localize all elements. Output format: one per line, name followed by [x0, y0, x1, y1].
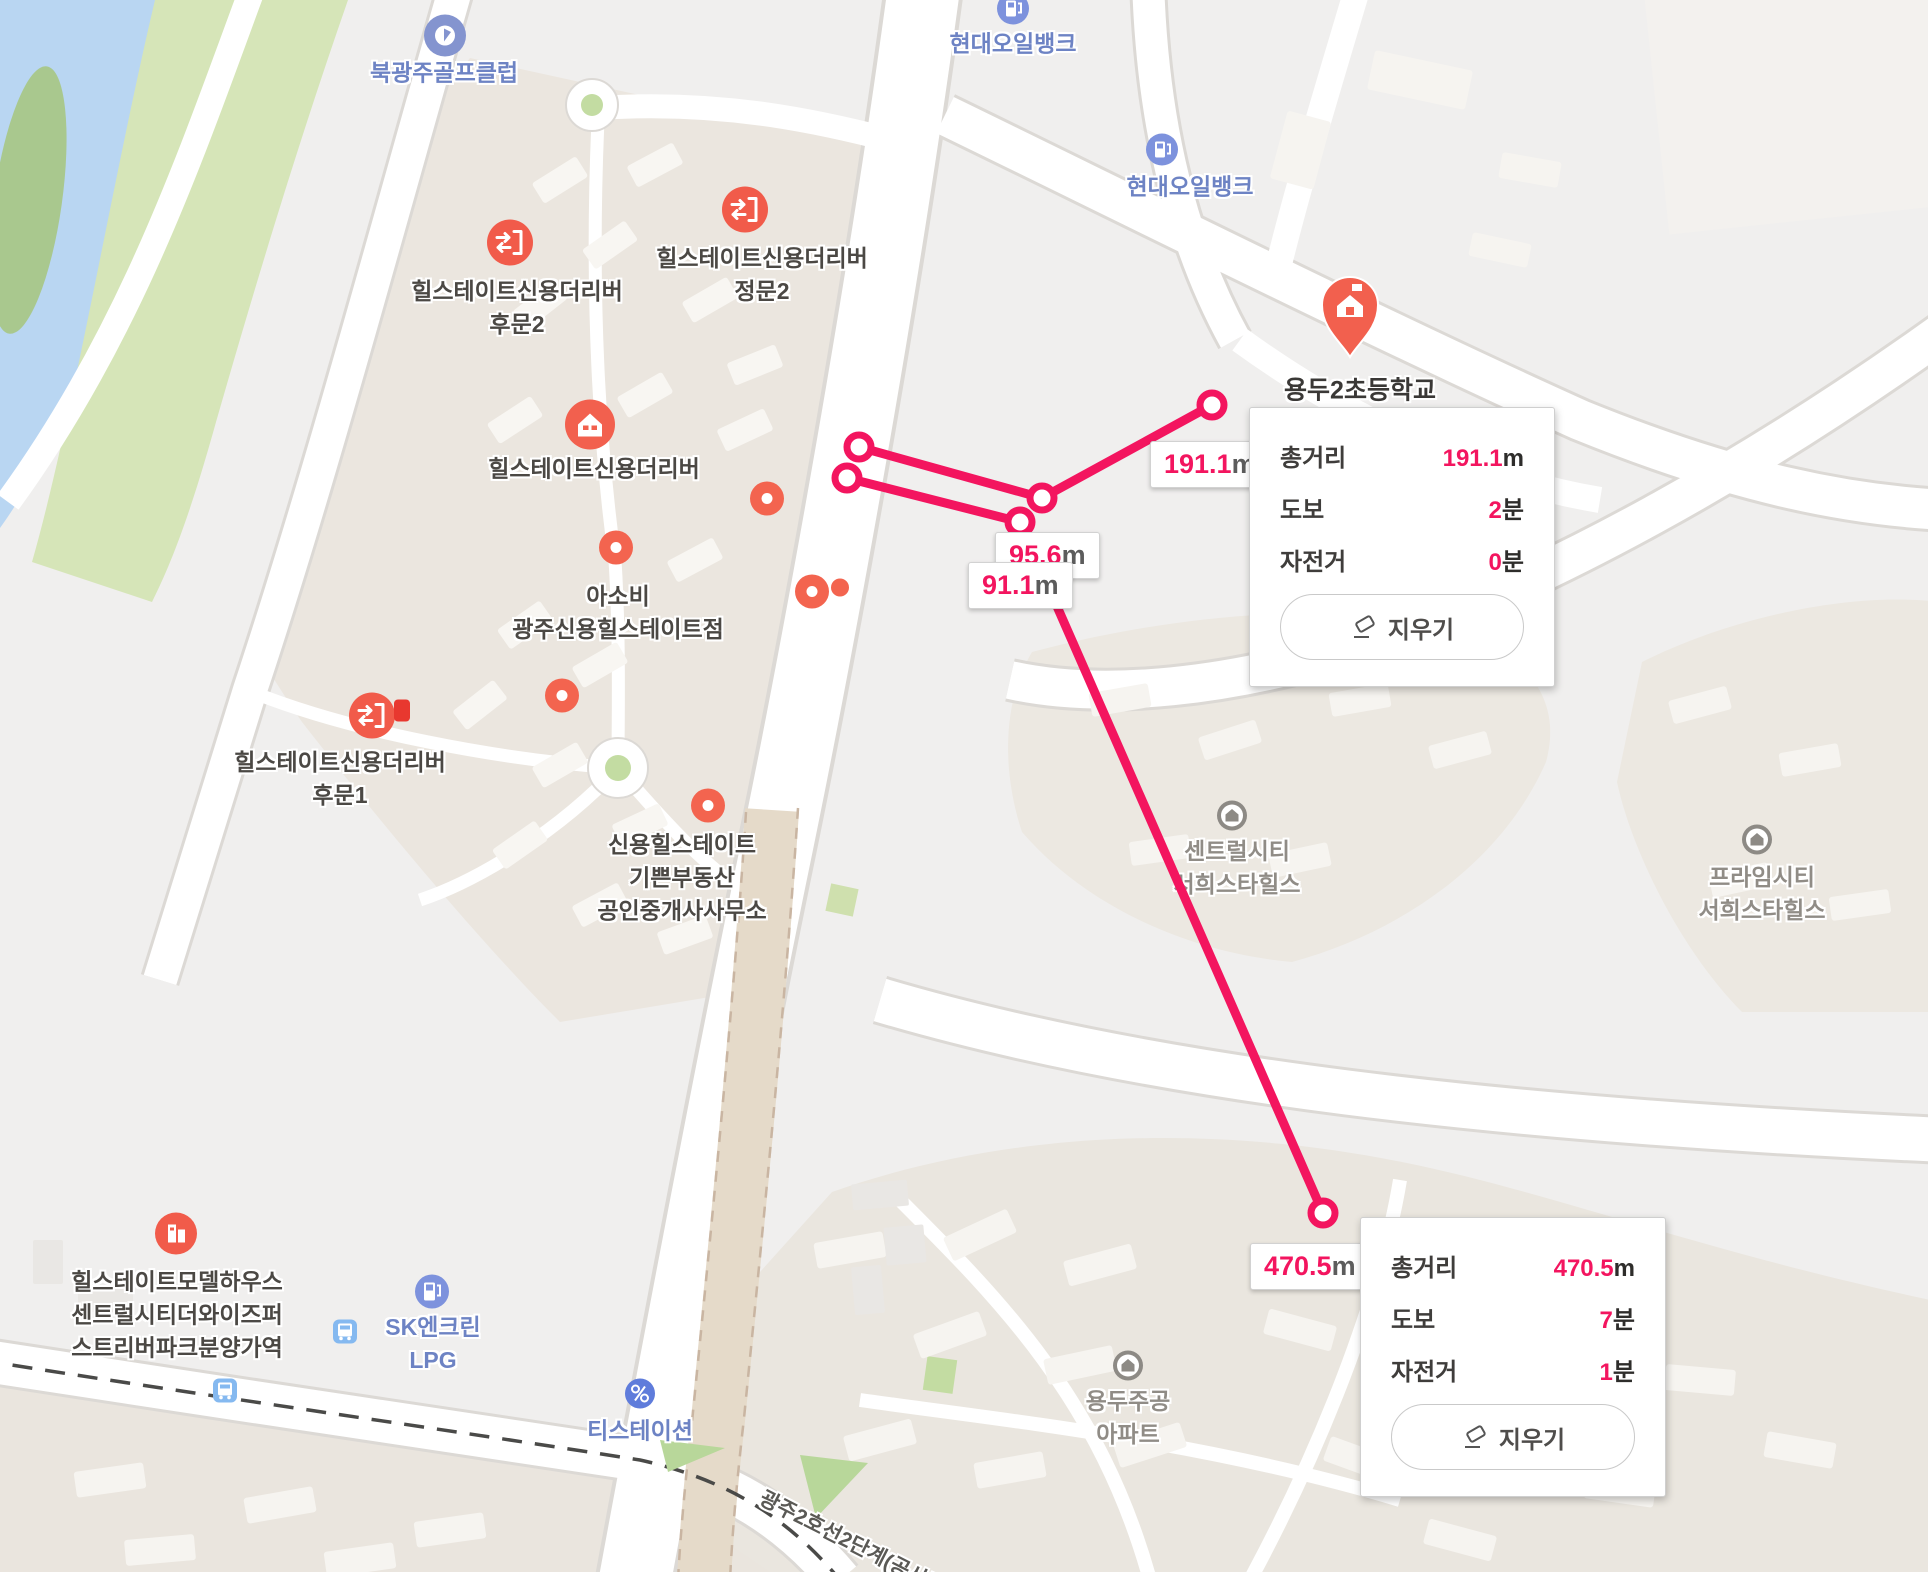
row-value: 191.1m: [1443, 445, 1524, 473]
eraser-icon: [1461, 1424, 1489, 1450]
distance-label: 470.5m: [1250, 1243, 1370, 1290]
popup-row-total: 총거리 191.1m: [1280, 438, 1524, 473]
popup-row-total: 총거리 470.5m: [1391, 1248, 1635, 1283]
popup-row-bike: 자전거 1분: [1391, 1352, 1635, 1387]
row-label: 도보: [1280, 490, 1324, 525]
clear-button-label: 지우기: [1499, 1420, 1565, 1455]
clear-button-label: 지우기: [1388, 610, 1454, 645]
popup-row-walk: 도보 2분: [1280, 490, 1524, 525]
popup-row-bike: 자전거 0분: [1280, 542, 1524, 577]
row-value: 2분: [1489, 490, 1524, 525]
eraser-icon: [1350, 614, 1378, 640]
measure-popup-total-470: 총거리 470.5m 도보 7분 자전거 1분 지우기: [1360, 1217, 1666, 1497]
map-canvas[interactable]: 북광주골프클럽현대오일뱅크현대오일뱅크힐스테이트신용더리버후문2힐스테이트신용더…: [0, 0, 1928, 1572]
row-label: 자전거: [1391, 1352, 1457, 1387]
distance-label: 91.1m: [968, 562, 1073, 609]
row-label: 자전거: [1280, 542, 1346, 577]
clear-measure-button[interactable]: 지우기: [1391, 1404, 1635, 1470]
row-value: 470.5m: [1554, 1255, 1635, 1283]
row-value: 1분: [1600, 1352, 1635, 1387]
popup-row-walk: 도보 7분: [1391, 1300, 1635, 1335]
row-value: 7분: [1600, 1300, 1635, 1335]
row-label: 총거리: [1280, 438, 1346, 473]
clear-measure-button[interactable]: 지우기: [1280, 594, 1524, 660]
measure-popup-total-191: 총거리 191.1m 도보 2분 자전거 0분 지우기: [1249, 407, 1555, 687]
row-label: 도보: [1391, 1300, 1435, 1335]
row-value: 0분: [1489, 542, 1524, 577]
row-label: 총거리: [1391, 1248, 1457, 1283]
